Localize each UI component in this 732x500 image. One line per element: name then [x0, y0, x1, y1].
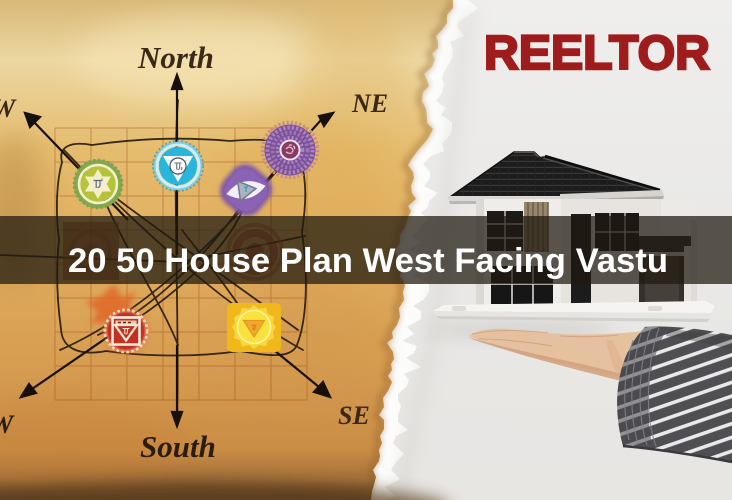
svg-text:W: W	[0, 94, 17, 123]
svg-text:North: North	[137, 40, 214, 75]
svg-text:SE: SE	[338, 401, 370, 430]
svg-text:20 50 House Plan West Facing V: 20 50 House Plan West Facing Vastu	[68, 242, 668, 280]
svg-text:South: South	[140, 429, 216, 464]
svg-text:REELTOR: REELTOR	[484, 27, 710, 80]
svg-text:W: W	[0, 410, 15, 439]
svg-text:NE: NE	[351, 89, 388, 118]
